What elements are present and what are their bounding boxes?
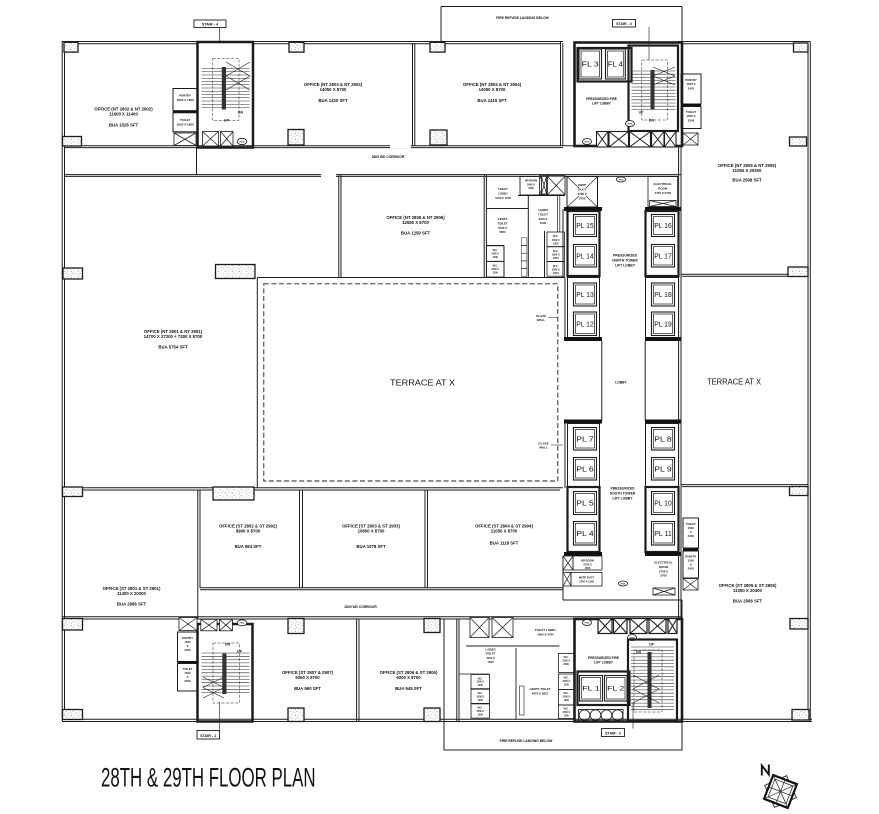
svg-text:4975 X 5815: 4975 X 5815 — [532, 691, 549, 695]
svg-text:14050 X 8700: 14050 X 8700 — [320, 87, 347, 92]
svg-text:MEPF DUCT: MEPF DUCT — [579, 576, 595, 580]
svg-text:TERRACE AT X: TERRACE AT X — [390, 378, 455, 388]
svg-text:PL 14: PL 14 — [576, 251, 593, 260]
svg-text:FIRE REFUGE LANDING BELOW: FIRE REFUGE LANDING BELOW — [500, 739, 554, 743]
svg-text:STAIR - 4: STAIR - 4 — [202, 23, 219, 27]
svg-text:P306: P306 — [585, 141, 591, 143]
svg-text:3100 X 2700: 3100 X 2700 — [495, 196, 511, 200]
svg-text:BUA 1259 SFT: BUA 1259 SFT — [401, 231, 431, 236]
svg-text:PRESSURIZED: PRESSURIZED — [610, 487, 635, 491]
svg-text:W.C.: W.C. — [553, 235, 559, 238]
svg-text:FIRE REFUGE LANDING BELOW: FIRE REFUGE LANDING BELOW — [496, 16, 550, 20]
svg-text:9350 X 8700: 9350 X 8700 — [295, 675, 320, 680]
svg-text:1500: 1500 — [528, 187, 534, 190]
svg-text:1500 X: 1500 X — [552, 268, 560, 271]
svg-text:LIFT LOBBY: LIFT LOBBY — [613, 496, 634, 500]
svg-text:1200: 1200 — [564, 699, 570, 702]
svg-text:1200: 1200 — [478, 684, 484, 687]
svg-text:PL 7: PL 7 — [576, 434, 593, 443]
svg-text:TOILET: TOILET — [180, 118, 191, 122]
svg-text:PL 6: PL 6 — [576, 464, 593, 473]
svg-text:UP: UP — [639, 111, 644, 115]
svg-text:11400 X 20300: 11400 X 20300 — [117, 591, 147, 596]
svg-text:10800 X 8700: 10800 X 8700 — [358, 529, 385, 534]
svg-text:1200: 1200 — [553, 257, 559, 260]
svg-text:P306: P306 — [585, 622, 591, 624]
svg-text:PL 9: PL 9 — [654, 464, 671, 473]
svg-text:PL 13: PL 13 — [576, 290, 593, 299]
svg-text:11050 X 20300: 11050 X 20300 — [733, 588, 763, 593]
svg-text:PL 16: PL 16 — [654, 221, 671, 230]
svg-text:1500: 1500 — [585, 566, 591, 570]
svg-text:1500 X: 1500 X — [552, 239, 560, 242]
svg-text:2425: 2425 — [688, 86, 695, 90]
svg-text:TERRACE AT X: TERRACE AT X — [707, 377, 761, 387]
svg-text:2000 X 1800: 2000 X 1800 — [177, 123, 194, 127]
svg-text:P306: P306 — [240, 141, 246, 143]
svg-text:PL 19: PL 19 — [654, 319, 671, 328]
svg-text:TOILET: TOILET — [498, 187, 508, 191]
svg-text:PL 12: PL 12 — [576, 319, 593, 328]
svg-text:STAIR - 3: STAIR - 3 — [616, 22, 632, 26]
svg-text:PL 10: PL 10 — [654, 499, 671, 508]
svg-text:11050 X 8700: 11050 X 8700 — [491, 529, 518, 534]
svg-text:W.C.: W.C. — [553, 250, 559, 253]
svg-text:LADIES: LADIES — [538, 208, 548, 212]
svg-text:SOUTH TOWER: SOUTH TOWER — [610, 491, 636, 495]
svg-text:P306: P306 — [619, 179, 625, 181]
svg-text:2300: 2300 — [688, 534, 695, 538]
svg-text:5650: 5650 — [499, 230, 506, 234]
svg-text:P306: P306 — [240, 623, 246, 625]
svg-text:BUA 1420 SFT: BUA 1420 SFT — [318, 98, 348, 103]
svg-text:LIFT LOBBY: LIFT LOBBY — [615, 263, 636, 267]
svg-text:UP: UP — [649, 643, 654, 647]
svg-text:2800 WD CORRIDOR: 2800 WD CORRIDOR — [344, 605, 377, 609]
svg-text:FL 1: FL 1 — [582, 686, 600, 693]
svg-text:WALL: WALL — [539, 446, 548, 450]
svg-text:TOILET: TOILET — [538, 212, 548, 216]
svg-text:5950 X 2700: 5950 X 2700 — [537, 632, 554, 636]
svg-text:WALL: WALL — [537, 318, 546, 322]
svg-text:DN: DN — [238, 111, 244, 115]
svg-text:TOILET LOBBY: TOILET LOBBY — [535, 628, 556, 632]
svg-text:DN: DN — [636, 651, 641, 655]
svg-text:DN: DN — [225, 643, 231, 647]
svg-text:1200: 1200 — [564, 714, 570, 717]
svg-text:1200: 1200 — [553, 242, 559, 245]
svg-text:12550 X 8700: 12550 X 8700 — [402, 220, 429, 225]
svg-text:1200: 1200 — [478, 699, 484, 702]
svg-text:14050 X 8700: 14050 X 8700 — [479, 87, 506, 92]
svg-text:PL 11: PL 11 — [654, 529, 671, 538]
svg-text:PL 8: PL 8 — [654, 434, 671, 443]
svg-text:BUA 1118 SFT: BUA 1118 SFT — [490, 541, 519, 546]
svg-text:TOILET: TOILET — [498, 221, 508, 225]
svg-text:DUCT: DUCT — [578, 188, 586, 192]
svg-text:FL 2: FL 2 — [607, 686, 625, 693]
svg-text:UP: UP — [224, 119, 230, 123]
svg-text:2700: 2700 — [660, 574, 667, 578]
svg-text:ELECTRICAL: ELECTRICAL — [654, 182, 673, 186]
svg-text:GENTS: GENTS — [498, 217, 508, 221]
svg-text:2425: 2425 — [184, 648, 191, 652]
svg-text:LOBBY: LOBBY — [498, 191, 508, 195]
svg-text:1200: 1200 — [564, 683, 570, 686]
svg-text:BUA 2568 SFT: BUA 2568 SFT — [732, 178, 762, 183]
svg-text:1200: 1200 — [493, 256, 499, 259]
svg-text:1500 X: 1500 X — [552, 254, 560, 257]
svg-text:14700 X 27200 + 7300 X 8700: 14700 X 27200 + 7300 X 8700 — [144, 334, 203, 339]
svg-text:2300: 2300 — [688, 118, 695, 122]
svg-text:BUA 2666 SFT: BUA 2666 SFT — [117, 602, 147, 607]
svg-text:2700 X: 2700 X — [583, 562, 591, 566]
svg-text:LIFT LOBBY: LIFT LOBBY — [592, 101, 612, 105]
svg-text:STAIR - 1: STAIR - 1 — [200, 734, 216, 738]
svg-text:9200 X 8700: 9200 X 8700 — [396, 675, 421, 680]
svg-text:BUA 945 SFT: BUA 945 SFT — [395, 686, 422, 691]
svg-text:2700: 2700 — [579, 197, 586, 201]
svg-text:P306: P306 — [628, 123, 634, 125]
svg-text:PL 17: PL 17 — [654, 251, 671, 260]
svg-text:PRESSURIZED: PRESSURIZED — [613, 254, 638, 258]
svg-text:7000: 7000 — [540, 221, 547, 225]
svg-text:PL 15: PL 15 — [576, 221, 593, 230]
svg-text:9900 X 8700: 9900 X 8700 — [236, 529, 261, 534]
svg-text:MEPF: MEPF — [578, 183, 586, 187]
svg-text:BR ROOM: BR ROOM — [581, 559, 594, 563]
svg-text:2300: 2300 — [184, 679, 191, 683]
svg-text:BUA 1526 SFT: BUA 1526 SFT — [109, 123, 139, 128]
svg-text:STAIR - 2: STAIR - 2 — [605, 732, 621, 736]
svg-text:PANTRY: PANTRY — [179, 94, 191, 98]
svg-text:NORTH TOWER: NORTH TOWER — [612, 258, 638, 262]
svg-text:BUA 1078 SFT: BUA 1078 SFT — [356, 544, 386, 549]
svg-text:2700 X: 2700 X — [578, 192, 587, 196]
svg-text:FL 3: FL 3 — [582, 60, 599, 69]
svg-text:BUA 1415 SFT: BUA 1415 SFT — [477, 98, 507, 103]
svg-text:FL 4: FL 4 — [608, 60, 623, 69]
svg-text:1200: 1200 — [478, 714, 484, 717]
svg-text:UP: UP — [237, 650, 243, 654]
svg-text:7000: 7000 — [487, 660, 494, 664]
svg-text:2800 WD CORRIDOR: 2800 WD CORRIDOR — [372, 155, 405, 159]
svg-text:ELECTRICAL: ELECTRICAL — [654, 561, 673, 565]
svg-text:W.C.: W.C. — [553, 265, 559, 268]
svg-text:BUA 984 SFT: BUA 984 SFT — [235, 544, 262, 549]
svg-text:2700 X 2700: 2700 X 2700 — [655, 191, 672, 195]
svg-text:1200: 1200 — [493, 272, 499, 275]
svg-text:2000: 2000 — [564, 663, 570, 666]
svg-text:2000 X: 2000 X — [527, 183, 535, 186]
svg-text:P306: P306 — [621, 583, 627, 585]
svg-text:2700 X 1350: 2700 X 1350 — [579, 579, 594, 583]
svg-text:PL 4: PL 4 — [576, 529, 593, 538]
svg-text:1200: 1200 — [553, 272, 559, 275]
svg-text:DN: DN — [649, 119, 654, 123]
svg-text:2000 X 1600: 2000 X 1600 — [177, 98, 194, 102]
svg-text:LOBBY: LOBBY — [615, 381, 627, 385]
svg-text:BR ROOM: BR ROOM — [525, 180, 537, 183]
svg-text:28TH & 29TH FLOOR PLAN: 28TH & 29TH FLOOR PLAN — [101, 763, 316, 793]
svg-text:PL 5: PL 5 — [576, 499, 593, 508]
svg-text:11600 X 11400: 11600 X 11400 — [109, 112, 138, 117]
svg-text:BUA 2568 SFT: BUA 2568 SFT — [733, 599, 763, 604]
svg-text:BUA 960 SFT: BUA 960 SFT — [294, 686, 321, 691]
svg-text:PRESSURIZED FIRE: PRESSURIZED FIRE — [586, 97, 617, 101]
svg-text:PL 18: PL 18 — [654, 290, 671, 299]
svg-text:ROOM: ROOM — [659, 565, 669, 569]
svg-text:BUA 5754 SFT: BUA 5754 SFT — [158, 345, 188, 350]
svg-text:2700 X: 2700 X — [659, 569, 668, 573]
svg-text:3100 X: 3100 X — [539, 217, 548, 221]
svg-text:11050 X 20300: 11050 X 20300 — [733, 168, 763, 173]
svg-text:PRESSURIZED FIRE: PRESSURIZED FIRE — [588, 656, 619, 660]
svg-text:2425: 2425 — [688, 567, 695, 571]
svg-text:ROOM: ROOM — [658, 187, 668, 191]
svg-text:3700 X: 3700 X — [498, 226, 507, 230]
svg-text:GENTS TOILET: GENTS TOILET — [530, 687, 551, 691]
svg-text:LIFT LOBBY: LIFT LOBBY — [594, 660, 614, 664]
